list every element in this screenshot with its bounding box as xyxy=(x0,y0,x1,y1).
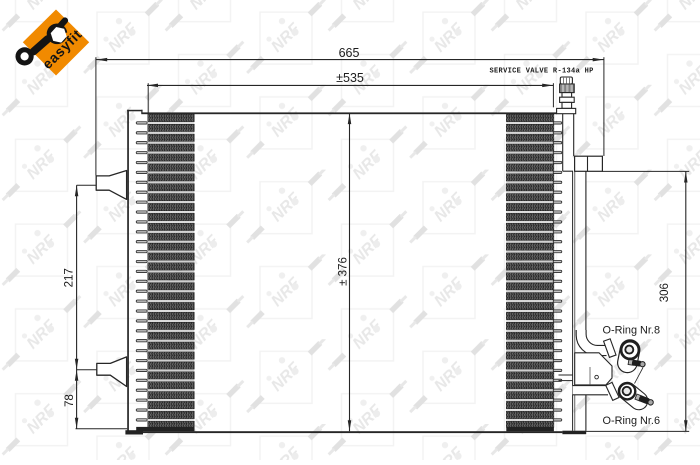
svg-text:78: 78 xyxy=(64,394,76,407)
svg-text:665: 665 xyxy=(339,46,360,60)
svg-text:306: 306 xyxy=(659,283,671,302)
svg-text:217: 217 xyxy=(63,268,75,287)
svg-text:SERVICE VALVE R-134a HP: SERVICE VALVE R-134a HP xyxy=(490,68,594,76)
svg-text:±535: ±535 xyxy=(336,71,364,85)
svg-text:O-Ring Nr.6: O-Ring Nr.6 xyxy=(603,415,661,427)
svg-text:O-Ring Nr.8: O-Ring Nr.8 xyxy=(603,324,661,336)
svg-text:± 376: ± 376 xyxy=(337,257,349,286)
